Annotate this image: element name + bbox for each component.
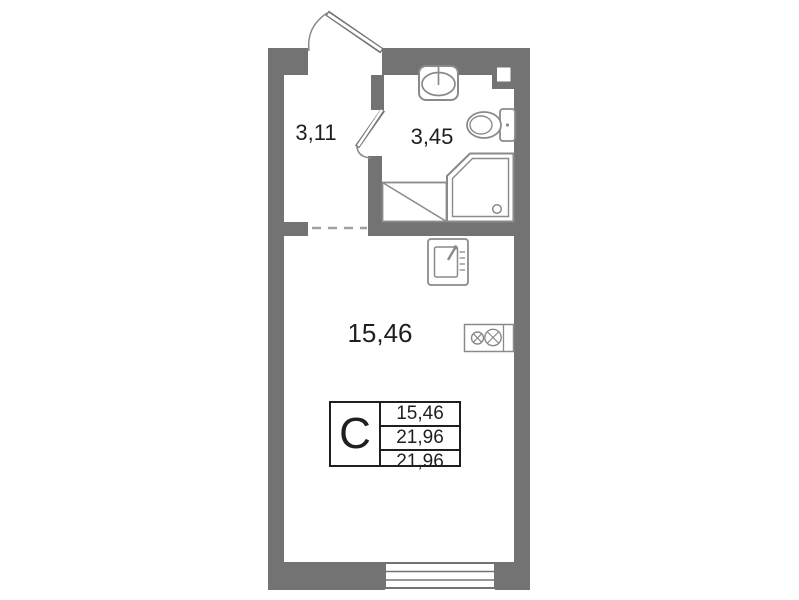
entrance-door-leaf-inner	[328, 14, 381, 50]
apartment-area-rows: 15,46 21,96 21,96	[381, 403, 459, 465]
balcony-window	[385, 563, 495, 588]
washing-machine-space-icon	[383, 183, 447, 222]
wall-bottom-left	[268, 562, 385, 590]
entrance-door-swing-arc	[309, 13, 327, 51]
bathroom-door	[357, 110, 383, 158]
living-area-value: 15,46	[381, 403, 459, 427]
total-area-with-balcony-value: 21,96	[381, 451, 459, 473]
vent-shaft	[492, 62, 516, 89]
toilet-icon	[467, 109, 515, 141]
kitchen-sink-icon	[428, 239, 468, 285]
bathroom-area-label: 3,45	[396, 124, 468, 150]
stove-icon	[465, 325, 514, 352]
living-room-area-label: 15,46	[339, 318, 421, 349]
bathroom-sink-icon	[419, 66, 458, 100]
entrance-door	[309, 13, 382, 51]
vent-shaft-opening	[497, 68, 511, 82]
bathroom-door-leaf-inner	[358, 110, 382, 146]
wall-bath-floor	[368, 222, 516, 236]
wall-bath-partition-upper	[371, 75, 384, 110]
apartment-info-table: С 15,46 21,96 21,96	[329, 401, 461, 467]
wall-hall-stub	[284, 222, 308, 236]
wall-bottom-right	[495, 562, 530, 590]
total-area-value: 21,96	[381, 427, 459, 451]
floorplan-drawing	[0, 0, 799, 600]
apartment-type-label: С	[331, 403, 381, 465]
hallway-area-label: 3,11	[280, 120, 352, 146]
shower-tray-icon	[447, 154, 514, 222]
wall-right	[514, 48, 530, 590]
floorplan-canvas: 3,11 3,45 15,46 С 15,46 21,96 21,96	[0, 0, 799, 600]
